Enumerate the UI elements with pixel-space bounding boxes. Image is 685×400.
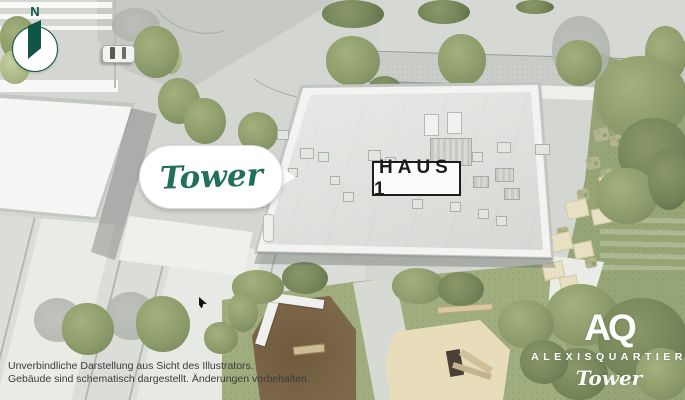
disclaimer-line1: Unverbindliche Darstellung aus Sicht des… [8,360,310,373]
curb-line [114,0,116,88]
alexisquartier-logo: AQ ALEXISQUARTIER Tower [523,308,685,390]
haus1-label-text: HAUS 1 [374,157,459,201]
haus1-label: HAUS 1 [372,161,461,196]
compass-north-label: N [26,4,44,19]
lawn-mow-stripes [600,218,685,270]
logo-monogram: AQ [523,308,685,348]
tower-callout-label: Tower [159,157,263,197]
disclaimer-line2: Gebäude sind schematisch dargestellt. Än… [8,373,310,386]
logo-claim: Tower [523,366,685,390]
logo-wordmark: ALEXISQUARTIER [523,350,685,364]
disclaimer-text: Unverbindliche Darstellung aus Sicht des… [8,360,310,386]
lane-marking [0,2,112,8]
tower-speech-bubble: Tower [139,145,283,209]
car [102,45,135,63]
site-plan-illustration: N Tower HAUS 1 Unverbindliche Darstellun… [0,0,685,400]
